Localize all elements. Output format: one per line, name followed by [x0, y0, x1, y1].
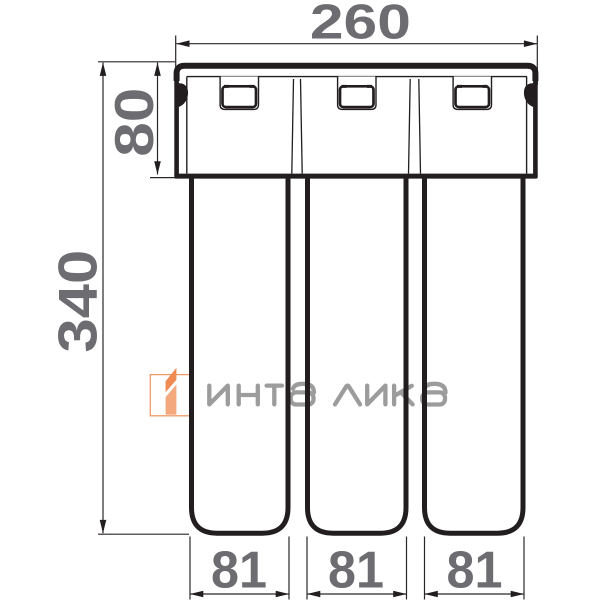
svg-text:81: 81 [211, 541, 267, 599]
svg-text:81: 81 [447, 541, 503, 599]
svg-text:81: 81 [328, 541, 384, 599]
svg-text:260: 260 [310, 0, 411, 50]
svg-text:340: 340 [47, 250, 109, 353]
svg-text:80: 80 [103, 88, 165, 157]
